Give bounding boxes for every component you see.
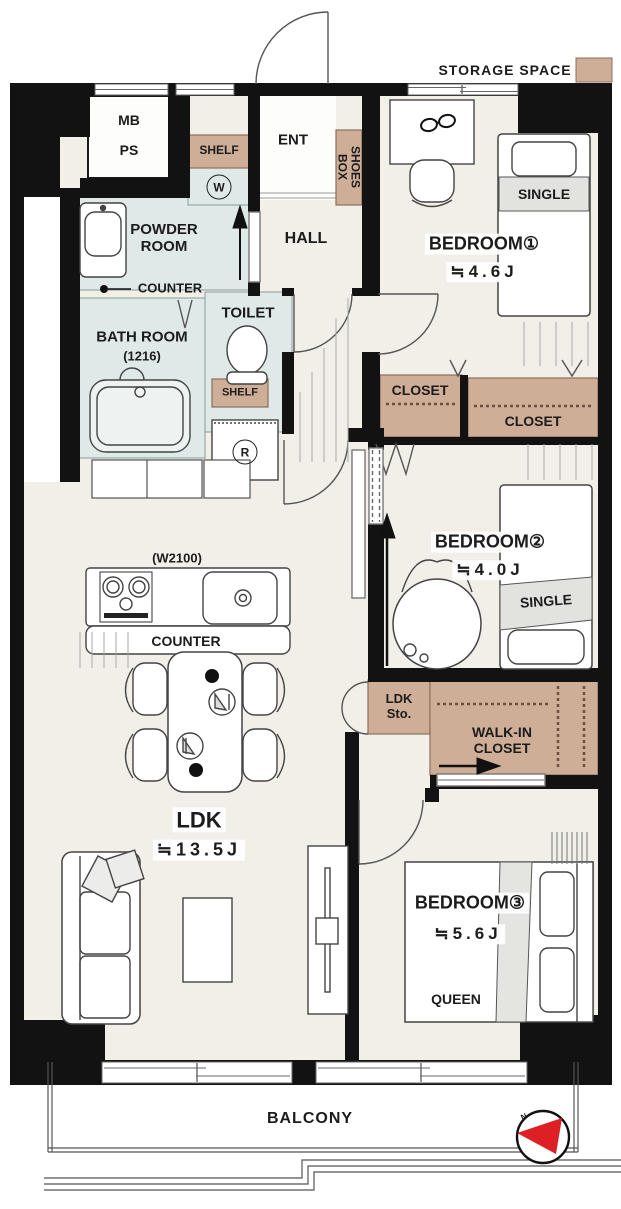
bedroom3-bed-label: QUEEN — [431, 991, 481, 1007]
bedroom1-size-label: ≒4.6J — [446, 262, 521, 282]
walk-in-closet-label: WALK-IN CLOSET — [456, 724, 548, 756]
bedroom1-bed-label: SINGLE — [518, 186, 570, 202]
bedroom1-name-label: BEDROOM① — [425, 234, 543, 255]
kitchen-counter-label: COUNTER — [151, 633, 220, 649]
powder-room-label: POWDER ROOM — [114, 221, 214, 256]
bedroom2-name-label: BEDROOM② — [431, 532, 549, 553]
storage-space-swatch — [576, 58, 612, 82]
floor-plan: STORAGE SPACE MB PS SHELF W ENT SHOES BO… — [0, 0, 621, 1209]
ldk-name-label: LDK — [172, 807, 225, 832]
powder-counter-label: COUNTER — [138, 282, 202, 297]
toilet-shelf-label: SHELF — [222, 387, 258, 400]
storage-space-label: STORAGE SPACE — [438, 62, 571, 78]
washer-symbol: W — [207, 175, 232, 200]
bath-room-label: BATH ROOM — [96, 328, 187, 345]
bedroom3-size-label: ≒5.6J — [430, 924, 505, 944]
ps-label: PS — [120, 142, 139, 158]
mb-label: MB — [118, 112, 140, 128]
bath-size-label: (1216) — [123, 350, 161, 365]
refrigerator-symbol: R — [233, 440, 258, 465]
bedroom2-size-label: ≒4.0J — [452, 560, 527, 580]
bedroom3-name-label: BEDROOM③ — [411, 893, 529, 914]
ldk-size-label: ≒13.5J — [153, 840, 245, 861]
balcony-label: BALCONY — [267, 1110, 353, 1128]
entrance-label: ENT — [278, 131, 308, 148]
closet-a-label: CLOSET — [392, 382, 449, 398]
ldk-storage-label: LDK Sto. — [377, 692, 421, 722]
shoes-box-label: SHOES BOX — [336, 132, 361, 202]
closet-b-label: CLOSET — [505, 413, 562, 429]
kitchen-width-label: (W2100) — [152, 552, 202, 567]
hall-label: HALL — [285, 230, 328, 248]
laundry-shelf-label: SHELF — [199, 144, 238, 158]
toilet-label: TOILET — [221, 304, 274, 321]
